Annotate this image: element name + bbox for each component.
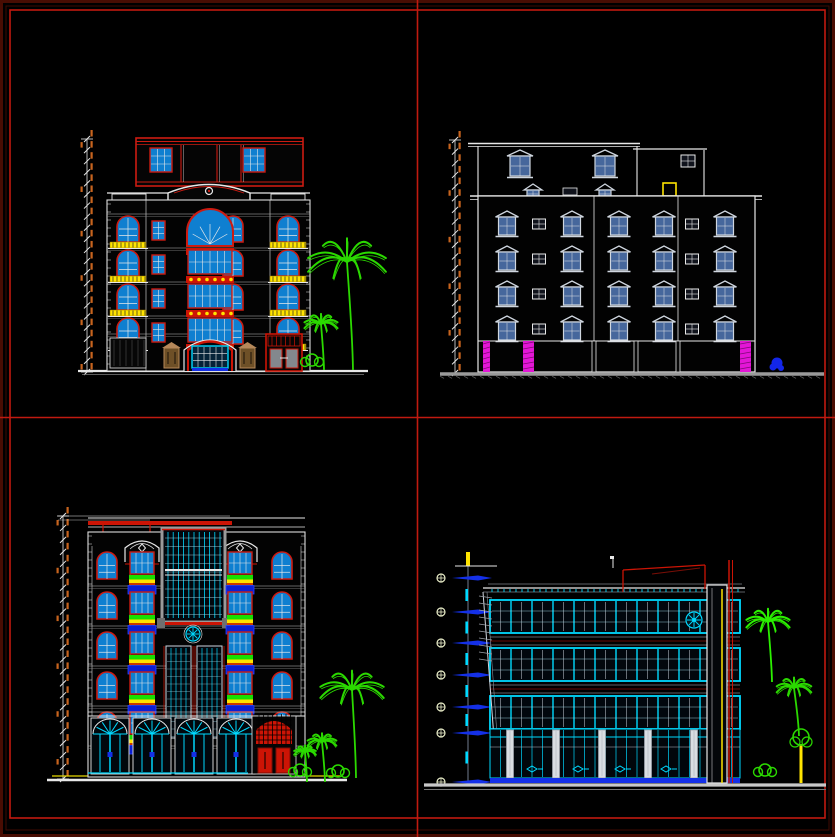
level-marker xyxy=(437,671,492,697)
glazed-window xyxy=(130,632,154,654)
rosette-ornament xyxy=(184,625,202,643)
bush xyxy=(754,764,777,777)
balcony-railing xyxy=(108,276,148,283)
arched-window xyxy=(272,592,292,619)
center-bay xyxy=(186,284,234,317)
dimension-line xyxy=(81,130,94,375)
elevation-ornate-front[interactable] xyxy=(47,507,384,782)
glass-band xyxy=(490,648,740,693)
balcony-railing xyxy=(108,242,148,249)
level-marker xyxy=(437,608,492,634)
arched-window xyxy=(97,632,117,659)
arched-window xyxy=(277,250,299,276)
glazed-window xyxy=(188,318,232,342)
palm-tree xyxy=(320,671,383,778)
level-markers xyxy=(437,552,497,786)
center-bay xyxy=(186,250,234,283)
fan-rosette xyxy=(686,612,702,628)
floor-row xyxy=(108,284,308,317)
arched-window xyxy=(97,552,117,579)
glass-band xyxy=(490,600,740,645)
glazed-window xyxy=(130,592,154,614)
elevation-rear[interactable] xyxy=(440,131,824,378)
glazed-window xyxy=(152,289,165,308)
dimension-line xyxy=(449,131,462,376)
level-marker xyxy=(437,729,492,764)
red-double-door xyxy=(266,334,302,371)
arched-window xyxy=(117,216,139,242)
elevation-classical-front[interactable] xyxy=(78,130,386,375)
glazed-window xyxy=(130,672,154,694)
penthouse xyxy=(136,138,303,186)
arched-window xyxy=(272,552,292,579)
balcony-railing xyxy=(268,242,308,249)
glazed-window xyxy=(228,592,252,614)
arched-window xyxy=(277,284,299,310)
glazed-window xyxy=(152,221,165,240)
arched-window xyxy=(277,216,299,242)
curtain-wall xyxy=(157,528,230,628)
glazed-window xyxy=(188,284,232,308)
red-entrance xyxy=(252,714,296,774)
arched-window xyxy=(97,672,117,699)
ground-line xyxy=(440,374,824,378)
roof-parapet xyxy=(483,584,745,592)
storefront-bay xyxy=(133,718,171,774)
glazed-window xyxy=(228,632,252,654)
palm-tree xyxy=(308,238,386,370)
balcony-railing xyxy=(268,276,308,283)
entrance-portal xyxy=(184,340,236,371)
glazed-window xyxy=(188,250,232,274)
ground-line xyxy=(424,785,826,790)
dimension-line xyxy=(57,507,70,782)
arched-window xyxy=(117,250,139,276)
glazed-window xyxy=(192,346,228,368)
glazed-window xyxy=(150,148,172,172)
service-tower xyxy=(707,560,733,783)
ground-floor xyxy=(490,729,740,783)
palm-tree xyxy=(746,609,789,682)
roof-slab xyxy=(468,144,707,150)
level-marker xyxy=(437,703,492,726)
storefront-bay xyxy=(175,718,213,774)
balcony-railing xyxy=(268,310,308,317)
arched-window xyxy=(97,592,117,619)
glazed-window xyxy=(152,255,165,274)
glazed-window xyxy=(152,323,165,342)
glazed-window xyxy=(228,672,252,694)
cad-sheet xyxy=(0,0,835,837)
arched-window xyxy=(272,632,292,659)
elevation-modern-glass[interactable] xyxy=(424,552,826,790)
shrub xyxy=(770,358,785,372)
cad-canvas xyxy=(0,0,835,837)
balcony-railing xyxy=(108,310,148,317)
glazed-window xyxy=(228,552,252,574)
floor-row xyxy=(108,250,308,283)
palm-tree xyxy=(308,733,337,782)
penthouse xyxy=(478,146,704,200)
center-bay xyxy=(186,209,234,255)
storefront-bay xyxy=(217,718,255,774)
yellow-trunk-tree xyxy=(790,729,812,783)
arched-window xyxy=(117,284,139,310)
level-marker xyxy=(437,639,492,665)
red-pergola xyxy=(610,556,705,592)
glazed-window xyxy=(130,552,154,574)
arched-window xyxy=(272,672,292,699)
glazed-window xyxy=(243,148,265,172)
parapet-cornice xyxy=(107,185,310,203)
storefront-bay xyxy=(91,718,129,774)
palm-tree xyxy=(777,677,812,736)
